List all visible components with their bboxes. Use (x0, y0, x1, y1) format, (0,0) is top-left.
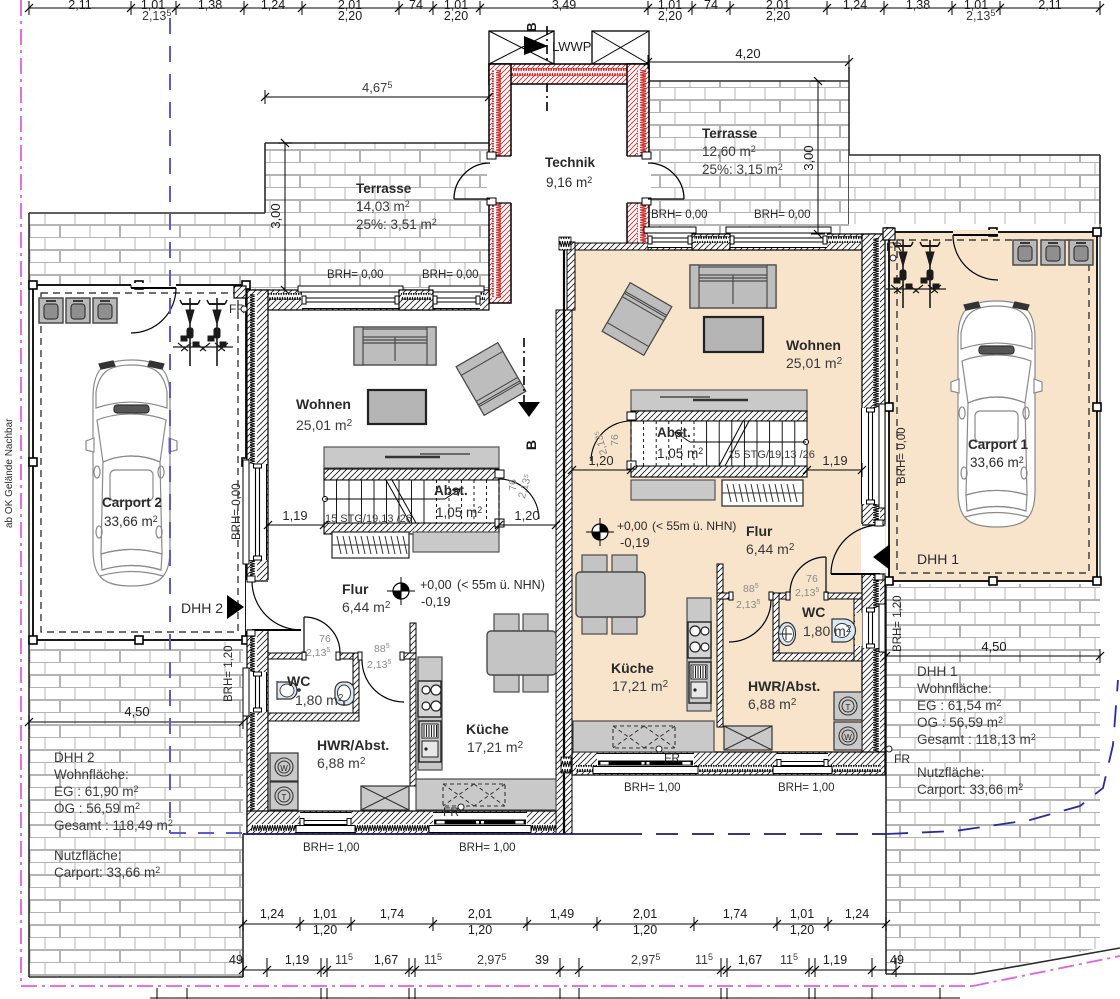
svg-text:1,19: 1,19 (282, 508, 307, 523)
svg-text:49: 49 (890, 953, 904, 967)
svg-text:3,00: 3,00 (268, 203, 283, 228)
svg-text:Gesamt : 118,49 m2: Gesamt : 118,49 m2 (54, 818, 173, 833)
svg-text:BRH= 0,00: BRH= 0,00 (754, 209, 811, 221)
svg-text:1,20: 1,20 (313, 923, 337, 937)
svg-text:W: W (844, 733, 852, 742)
svg-text:74: 74 (409, 0, 423, 12)
svg-text:9,16 m2: 9,16 m2 (546, 175, 592, 190)
svg-text:Wohnen: Wohnen (786, 337, 841, 353)
svg-text:2,20: 2,20 (338, 9, 362, 23)
svg-text:4,50: 4,50 (124, 704, 149, 719)
svg-text:BRH= 0,00: BRH= 0,00 (896, 427, 908, 484)
svg-text:+0,00: +0,00 (617, 519, 648, 533)
svg-text:2,11: 2,11 (68, 0, 91, 12)
svg-text:(< 55m ü. NHN): (< 55m ü. NHN) (652, 519, 736, 533)
svg-text:Terrasse: Terrasse (702, 126, 758, 141)
svg-text:12,60 m2: 12,60 m2 (702, 144, 756, 159)
svg-text:1,80 m2: 1,80 m2 (803, 623, 852, 639)
svg-text:BRH= 1,00: BRH= 1,00 (624, 782, 681, 794)
svg-text:39: 39 (535, 953, 549, 967)
svg-text:76: 76 (806, 573, 818, 585)
svg-text:4,20: 4,20 (735, 46, 760, 61)
svg-text:FR: FR (664, 751, 680, 765)
svg-text:25%: 3,51 m2: 25%: 3,51 m2 (356, 217, 437, 232)
svg-text:1,20: 1,20 (468, 923, 492, 937)
svg-text:Technik: Technik (545, 155, 596, 170)
svg-text:3,00: 3,00 (801, 145, 816, 170)
svg-text:HWR/Abst.: HWR/Abst. (317, 737, 389, 753)
svg-text:BRH= 0,00: BRH= 0,00 (651, 209, 708, 221)
svg-text:FR: FR (886, 240, 902, 254)
svg-text:Carport 2: Carport 2 (102, 495, 162, 510)
svg-text:1,67: 1,67 (374, 953, 398, 967)
svg-text:1,19: 1,19 (822, 453, 847, 468)
svg-text:DHH 1: DHH 1 (917, 664, 958, 679)
svg-text:1,20: 1,20 (514, 508, 539, 523)
svg-text:6,88 m2: 6,88 m2 (317, 755, 366, 771)
svg-text:FR: FR (443, 805, 459, 819)
svg-text:Wohnen: Wohnen (296, 396, 351, 412)
svg-text:Flur: Flur (342, 581, 369, 597)
svg-text:1,38: 1,38 (198, 0, 222, 12)
svg-text:B: B (523, 440, 539, 450)
svg-text:BRH= 1,00: BRH= 1,00 (778, 782, 835, 794)
svg-text:Carport: 33,66 m2: Carport: 33,66 m2 (54, 865, 160, 880)
svg-text:1,20: 1,20 (588, 453, 613, 468)
svg-text:1,74: 1,74 (380, 907, 404, 921)
svg-text:BRH= 0,00: BRH= 0,00 (422, 269, 479, 281)
svg-text:1,24: 1,24 (843, 0, 867, 12)
svg-text:15 STG/19,13 /26: 15 STG/19,13 /26 (728, 449, 815, 461)
svg-text:2,11: 2,11 (1038, 0, 1061, 12)
svg-text:74: 74 (704, 0, 718, 12)
svg-text:FR: FR (894, 752, 910, 766)
svg-text:-0,19: -0,19 (620, 535, 650, 550)
svg-text:T: T (846, 703, 851, 712)
svg-text:2,20: 2,20 (444, 9, 468, 23)
svg-text:1,49: 1,49 (550, 907, 574, 921)
svg-text:+0,00: +0,00 (420, 578, 452, 592)
svg-text:6,88 m2: 6,88 m2 (748, 696, 797, 712)
svg-text:25,01 m2: 25,01 m2 (786, 355, 843, 371)
svg-text:2,20: 2,20 (658, 9, 682, 23)
svg-text:1,19: 1,19 (823, 953, 847, 967)
svg-text:EG : 61,54 m2: EG : 61,54 m2 (917, 698, 1002, 713)
svg-text:33,66 m2: 33,66 m2 (104, 514, 158, 529)
svg-text:Flur: Flur (746, 523, 773, 539)
svg-text:EG : 61,90 m2: EG : 61,90 m2 (54, 784, 139, 799)
svg-text:1,20: 1,20 (790, 923, 814, 937)
svg-text:1,01: 1,01 (313, 907, 337, 921)
svg-text:25,01 m2: 25,01 m2 (296, 417, 353, 433)
svg-text:17,21 m2: 17,21 m2 (467, 739, 524, 755)
svg-text:17,21 m2: 17,21 m2 (612, 678, 669, 694)
svg-text:1,67: 1,67 (738, 953, 762, 967)
svg-text:Nutzfläche:: Nutzfläche: (917, 765, 985, 780)
svg-text:3,49: 3,49 (552, 0, 576, 12)
svg-text:1,05 m2: 1,05 m2 (657, 446, 703, 461)
svg-text:1,24: 1,24 (845, 907, 869, 921)
svg-text:76: 76 (609, 434, 621, 446)
svg-text:DHH 1: DHH 1 (917, 551, 959, 567)
svg-text:Küche: Küche (466, 721, 509, 737)
svg-text:1,20: 1,20 (633, 923, 657, 937)
svg-text:Carport: 33,66 m2: Carport: 33,66 m2 (917, 782, 1023, 797)
svg-text:Terrasse: Terrasse (356, 181, 412, 196)
svg-text:6,44 m2: 6,44 m2 (342, 599, 391, 615)
svg-text:Wohnfläche:: Wohnfläche: (917, 681, 992, 696)
svg-text:1,24: 1,24 (261, 0, 285, 12)
svg-text:BRH= 0,00: BRH= 0,00 (231, 483, 243, 540)
svg-text:BRH= 1,00: BRH= 1,00 (459, 842, 516, 854)
svg-text:1,19: 1,19 (285, 953, 309, 967)
svg-text:Nutzfläche:: Nutzfläche: (54, 848, 122, 863)
svg-text:DHH 2: DHH 2 (181, 600, 223, 616)
svg-text:2,20: 2,20 (766, 9, 790, 23)
svg-text:BRH= 0,00: BRH= 0,00 (327, 269, 384, 281)
svg-text:HWR/Abst.: HWR/Abst. (748, 678, 820, 694)
svg-text:Wohnfläche:: Wohnfläche: (54, 767, 129, 782)
svg-text:6,44 m2: 6,44 m2 (746, 541, 795, 557)
svg-text:(< 55m ü. NHN): (< 55m ü. NHN) (457, 578, 545, 592)
svg-text:1,01: 1,01 (790, 907, 814, 921)
svg-text:BRH= 1,20: BRH= 1,20 (892, 595, 904, 652)
svg-text:WC: WC (802, 604, 825, 620)
svg-text:2,01: 2,01 (468, 907, 492, 921)
svg-text:1,05 m2: 1,05 m2 (436, 505, 482, 520)
svg-text:1,38: 1,38 (906, 0, 930, 12)
svg-text:49: 49 (229, 953, 243, 967)
svg-text:T: T (282, 793, 287, 802)
svg-text:BRH= 1,00: BRH= 1,00 (303, 842, 360, 854)
svg-text:4,50: 4,50 (981, 639, 1006, 654)
svg-text:1,80 m2: 1,80 m2 (295, 692, 344, 708)
svg-text:B: B (524, 22, 539, 31)
svg-text:OG : 56,59 m2: OG : 56,59 m2 (917, 715, 1003, 730)
svg-text:15 STG/19,13 /26: 15 STG/19,13 /26 (325, 513, 412, 525)
svg-text:2,01: 2,01 (633, 907, 657, 921)
svg-text:Gesamt : 118,13 m2: Gesamt : 118,13 m2 (917, 732, 1036, 747)
svg-text:-0,19: -0,19 (421, 594, 451, 609)
svg-text:ab OK Gelände Nachbar: ab OK Gelände Nachbar (4, 418, 15, 528)
svg-text:OG : 56,59 m2: OG : 56,59 m2 (54, 801, 140, 816)
svg-text:76: 76 (319, 633, 331, 645)
svg-text:Küche: Küche (611, 660, 654, 676)
svg-text:LWWP: LWWP (552, 39, 591, 54)
svg-text:14,03 m2: 14,03 m2 (356, 199, 410, 214)
svg-text:1,24: 1,24 (260, 907, 284, 921)
svg-text:DHH 2: DHH 2 (54, 750, 95, 765)
svg-text:W: W (280, 764, 288, 773)
svg-text:33,66 m2: 33,66 m2 (970, 455, 1024, 470)
svg-text:Abst.: Abst. (657, 425, 691, 440)
svg-text:1,74: 1,74 (723, 907, 747, 921)
svg-text:25%: 3,15 m2: 25%: 3,15 m2 (702, 162, 783, 177)
svg-text:BRH= 1,20: BRH= 1,20 (223, 645, 235, 702)
svg-text:Abst.: Abst. (434, 483, 468, 498)
svg-text:Carport 1: Carport 1 (968, 437, 1029, 452)
svg-text:WC: WC (287, 673, 310, 689)
